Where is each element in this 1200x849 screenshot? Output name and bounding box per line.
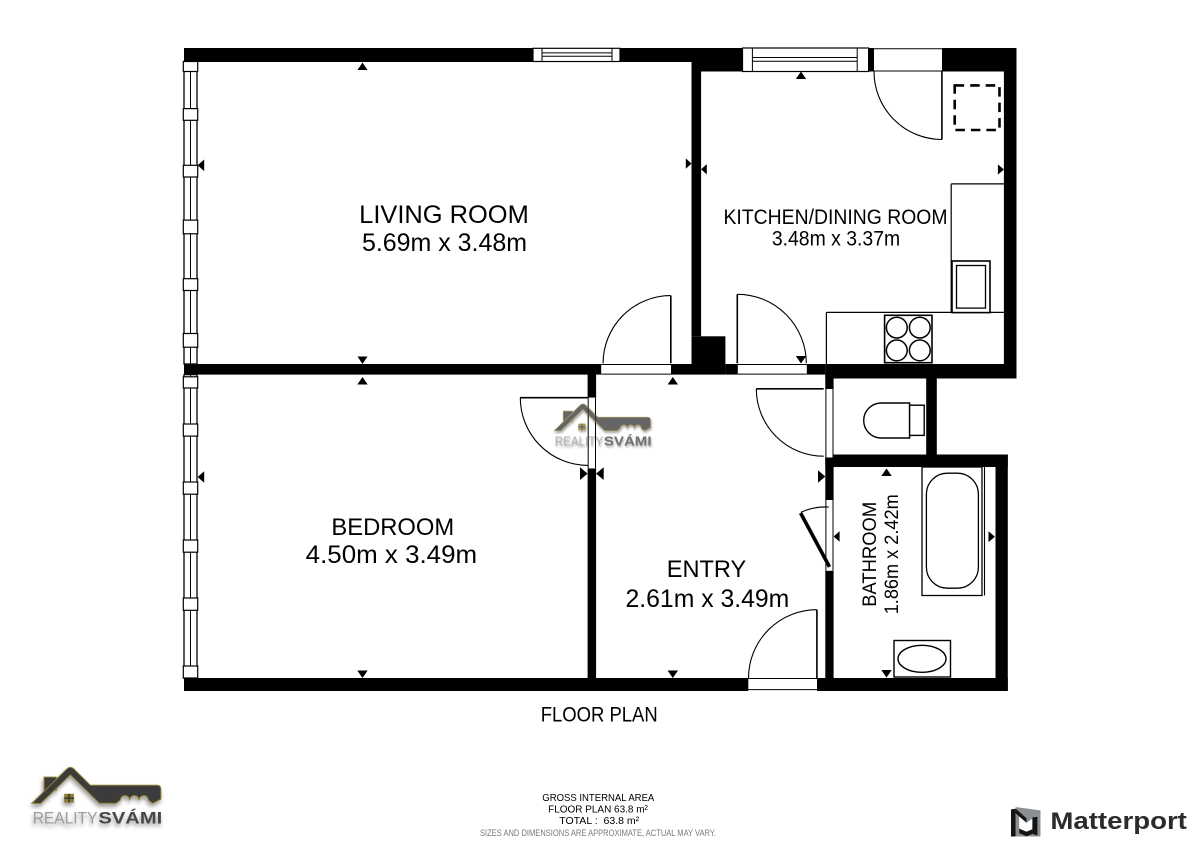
svg-text:1.86m x 2.42m: 1.86m x 2.42m — [881, 494, 903, 614]
svg-text:FLOOR PLAN 63.8 m²: FLOOR PLAN 63.8 m² — [548, 805, 648, 816]
svg-text:BEDROOM: BEDROOM — [331, 514, 454, 541]
svg-text:BATHROOM: BATHROOM — [859, 502, 881, 607]
svg-text:ENTRY: ENTRY — [667, 556, 747, 583]
svg-text:2.61m x 3.49m: 2.61m x 3.49m — [626, 585, 790, 613]
svg-text:5.69m x 3.48m: 5.69m x 3.48m — [362, 229, 527, 257]
svg-text:TOTAL : 63.8 m²: TOTAL : 63.8 m² — [559, 816, 639, 827]
svg-text:Matterport: Matterport — [1050, 808, 1187, 835]
svg-text:LIVING ROOM: LIVING ROOM — [359, 201, 529, 229]
svg-text:SIZES AND DIMENSIONS ARE APPRO: SIZES AND DIMENSIONS ARE APPROXIMATE, AC… — [480, 828, 716, 839]
svg-text:3.48m x 3.37m: 3.48m x 3.37m — [772, 228, 900, 251]
svg-text:KITCHEN/DINING ROOM: KITCHEN/DINING ROOM — [724, 206, 948, 229]
svg-text:FLOOR PLAN: FLOOR PLAN — [541, 703, 658, 727]
svg-text:GROSS INTERNAL AREA: GROSS INTERNAL AREA — [542, 793, 654, 804]
svg-text:4.50m x 3.49m: 4.50m x 3.49m — [306, 541, 477, 569]
